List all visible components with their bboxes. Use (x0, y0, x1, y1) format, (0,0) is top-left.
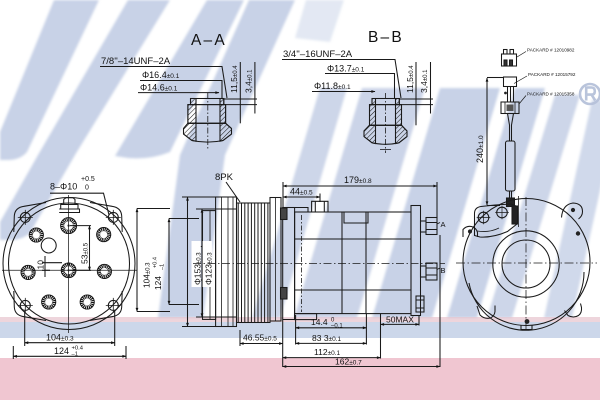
svg-text:A–A: A–A (191, 32, 227, 49)
svg-text:A: A (441, 220, 446, 229)
svg-text:8PK: 8PK (215, 172, 234, 183)
svg-text:Φ11.8±0.1: Φ11.8±0.1 (314, 81, 351, 91)
svg-text:104±0.3: 104±0.3 (142, 262, 152, 288)
svg-text:–0.1: –0.1 (331, 324, 343, 330)
svg-text:Φ13.7±0.1: Φ13.7±0.1 (327, 64, 365, 74)
svg-text:PACKARD # 12015792: PACKARD # 12015792 (528, 72, 576, 77)
svg-text:B: B (441, 266, 446, 275)
svg-text:+0.4: +0.4 (153, 257, 159, 268)
svg-text:53±0.5: 53±0.5 (80, 242, 90, 264)
svg-text:10: 10 (36, 260, 46, 270)
svg-text:–1: –1 (160, 264, 166, 270)
svg-text:112±0.1: 112±0.1 (314, 347, 341, 357)
svg-text:–1: –1 (72, 351, 78, 357)
svg-text:3/4''–16UNF–2A: 3/4''–16UNF–2A (283, 49, 353, 60)
svg-text:+0.5: +0.5 (81, 176, 95, 183)
svg-text:3,4±0.1: 3,4±0.1 (419, 69, 429, 93)
svg-text:50MAX: 50MAX (386, 315, 414, 325)
svg-text:14.4: 14.4 (311, 317, 328, 327)
svg-text:B–B: B–B (368, 29, 404, 46)
svg-text:0: 0 (85, 185, 89, 192)
svg-text:PACKARD # 12015358: PACKARD # 12015358 (527, 92, 575, 97)
svg-text:11,5±0.4: 11,5±0.4 (405, 65, 415, 93)
svg-text:124: 124 (153, 276, 163, 290)
svg-text:PACKARD # 12010982: PACKARD # 12010982 (527, 48, 575, 53)
svg-text:7/8''–14UNF–2A: 7/8''–14UNF–2A (101, 56, 171, 67)
svg-text:8–Φ10: 8–Φ10 (50, 182, 77, 192)
svg-text:124: 124 (54, 346, 69, 356)
